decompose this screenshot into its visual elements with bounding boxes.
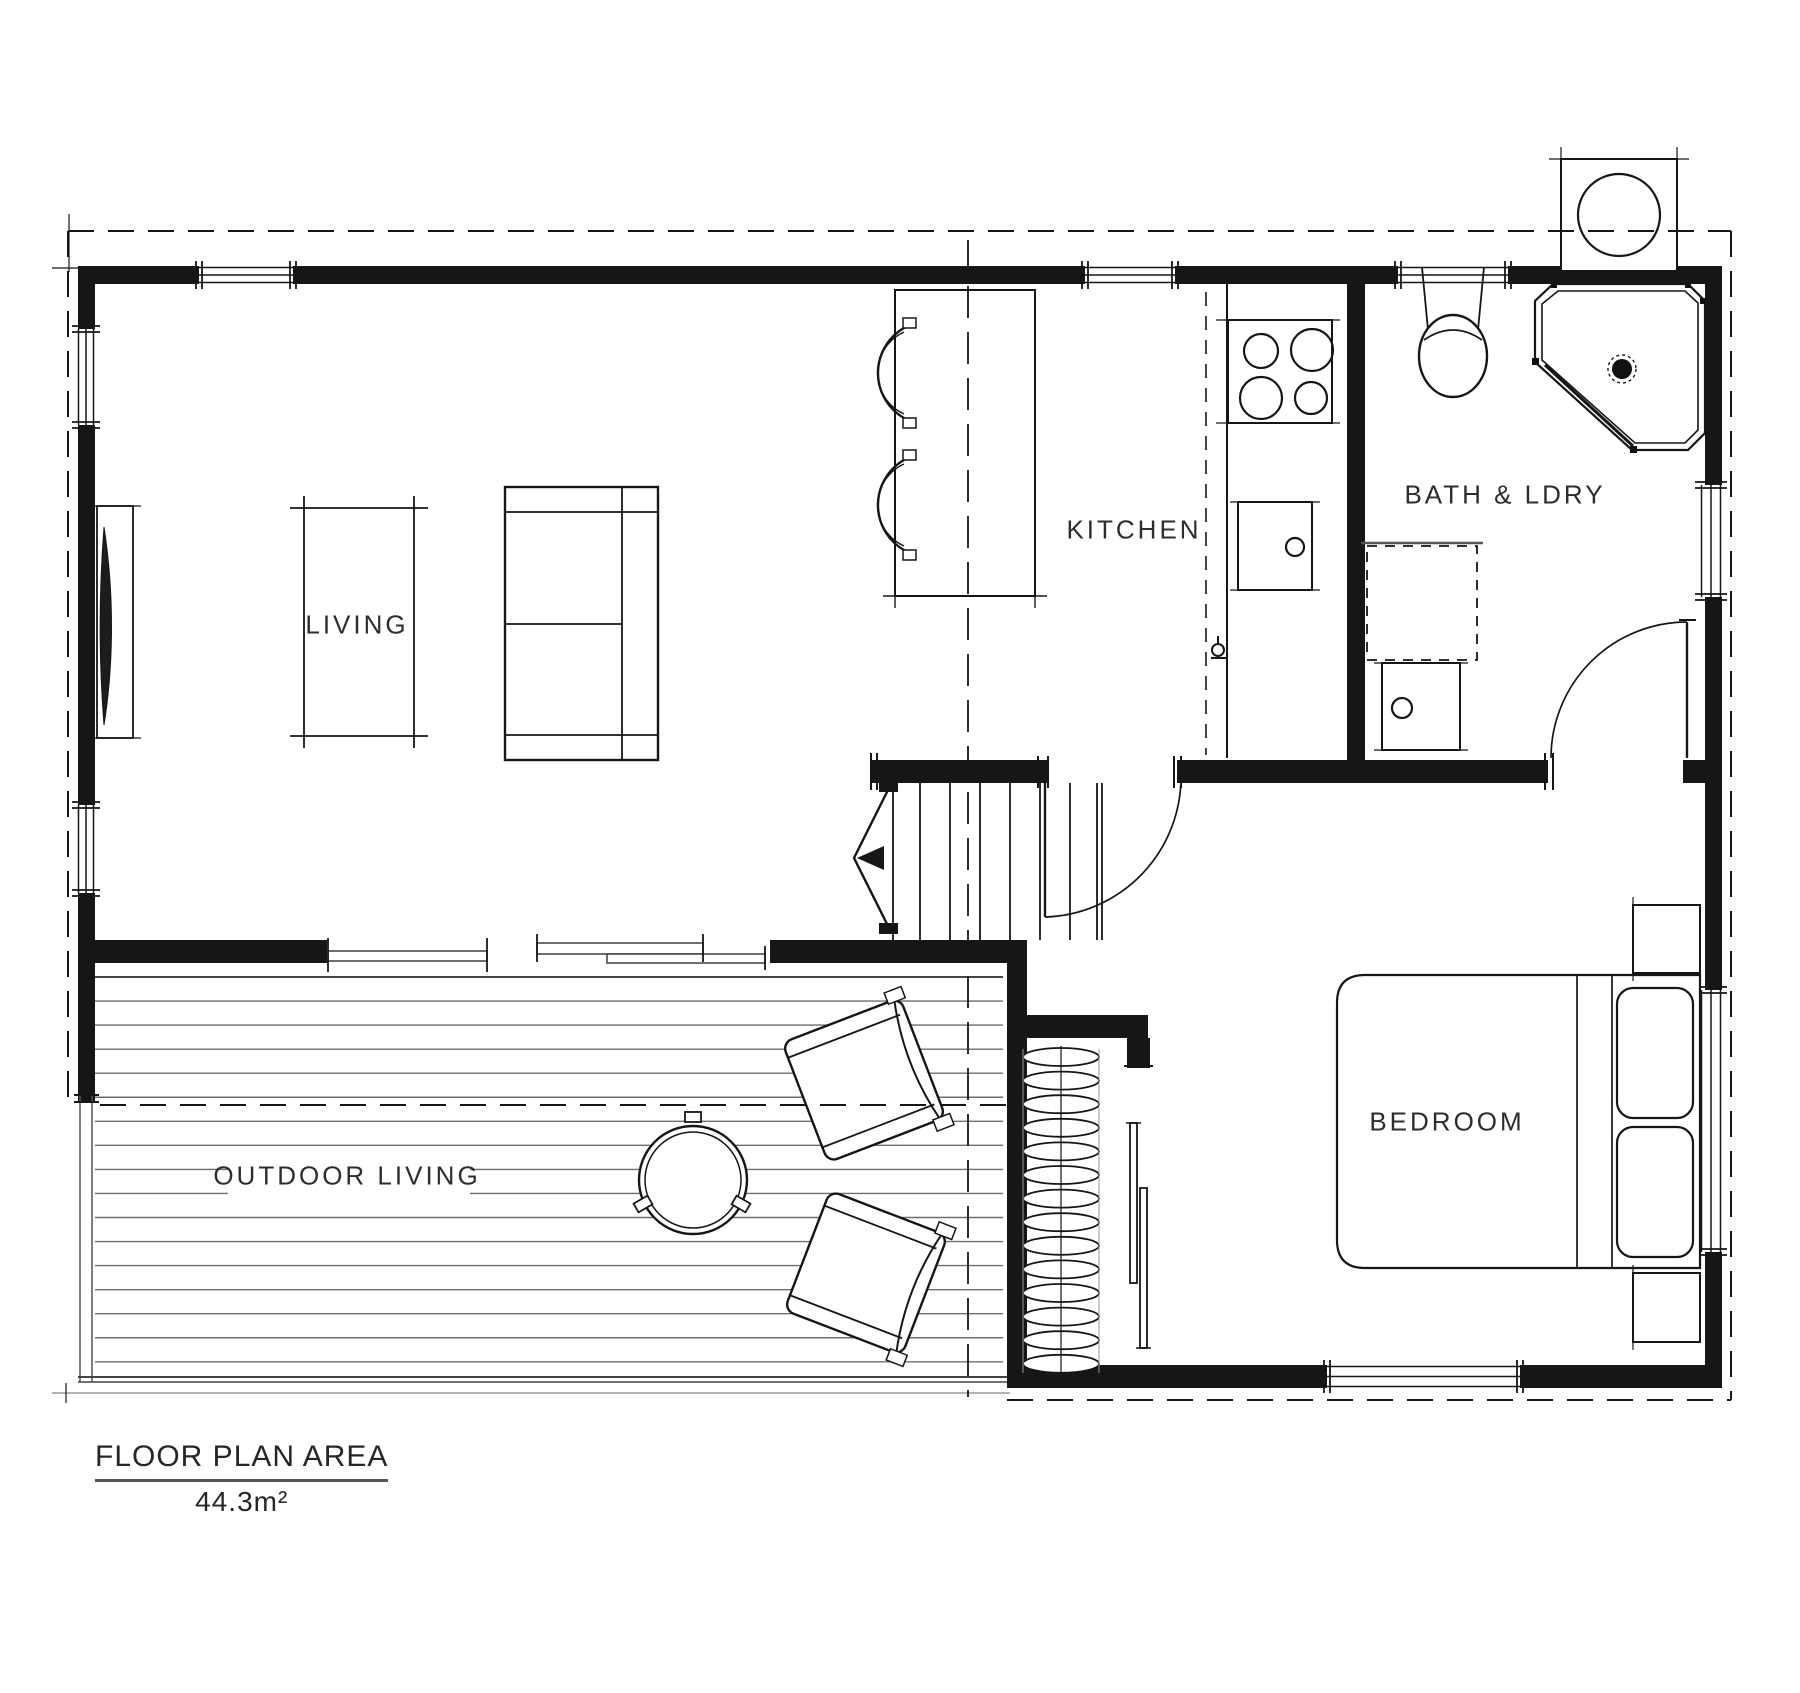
shower-hinge [1630, 446, 1637, 453]
bath-door-swing [1551, 622, 1687, 758]
pillow [1617, 988, 1693, 1118]
wall-entry-stub [1127, 1038, 1150, 1068]
shower-hinge [1700, 298, 1706, 304]
wall-bedroom-south-b [1520, 1365, 1722, 1388]
title-block: FLOOR PLAN AREA 44.3m² [95, 1440, 388, 1518]
wall-entry-spur [1027, 1015, 1148, 1038]
shower-hinge [1551, 282, 1557, 288]
wall-hall-north-a [870, 760, 1047, 783]
bedroom-door-swing [1045, 777, 1181, 917]
bar-stool [903, 318, 916, 328]
floor-plan-area-value: 44.3m² [95, 1486, 388, 1518]
wall-living-south-b [770, 940, 1027, 963]
wall-kitchen-bath [1347, 284, 1365, 760]
bedside-table [1633, 905, 1700, 973]
floor-plan-page: LIVINGKITCHENBATH & LDRYBEDROOMOUTDOOR L… [0, 0, 1800, 1693]
sliding-door-panel [607, 954, 765, 963]
room-label-outdoor-living: OUTDOOR LIVING [213, 1161, 480, 1192]
room-label-bedroom: BEDROOM [1369, 1107, 1524, 1138]
room-label-kitchen: KITCHEN [1066, 515, 1201, 546]
bifold-cap [879, 923, 898, 934]
wall-hall-north-b [1177, 760, 1548, 783]
bar-stool [903, 418, 916, 428]
tv-screen [100, 527, 111, 725]
bar-stool [903, 450, 916, 460]
tap [1212, 644, 1224, 656]
shower-hinge [1685, 282, 1691, 288]
shower-hinge [1532, 358, 1539, 365]
room-label-living: LIVING [305, 610, 408, 641]
toilet-bowl [1419, 315, 1487, 397]
washing-machine [1367, 546, 1477, 660]
laundry-tub [1382, 663, 1460, 750]
bedroom-slider-pane [1140, 1188, 1147, 1348]
outdoor-table [639, 1126, 747, 1234]
table-foot [685, 1112, 701, 1122]
door-arrow [857, 846, 884, 870]
sink-cabinet [1238, 502, 1312, 590]
wall-living-south-a [78, 940, 327, 963]
bar-stool [903, 550, 916, 560]
sliding-door-panel [537, 943, 703, 954]
deck-chair [886, 1349, 907, 1367]
floor-plan-area-title: FLOOR PLAN AREA [95, 1440, 388, 1482]
bedside-table [1633, 1273, 1700, 1342]
room-label-bath-ldry: BATH & LDRY [1404, 480, 1605, 511]
shower-drain [1612, 359, 1632, 379]
deck-chair [782, 998, 946, 1163]
sliding-door-panel [328, 951, 487, 961]
bedroom-slider-pane [1130, 1123, 1137, 1283]
pillow [1617, 1127, 1693, 1257]
wall-hall-north-c [1683, 760, 1722, 783]
deck-chair [784, 1191, 948, 1356]
bifold-cap [879, 781, 898, 792]
